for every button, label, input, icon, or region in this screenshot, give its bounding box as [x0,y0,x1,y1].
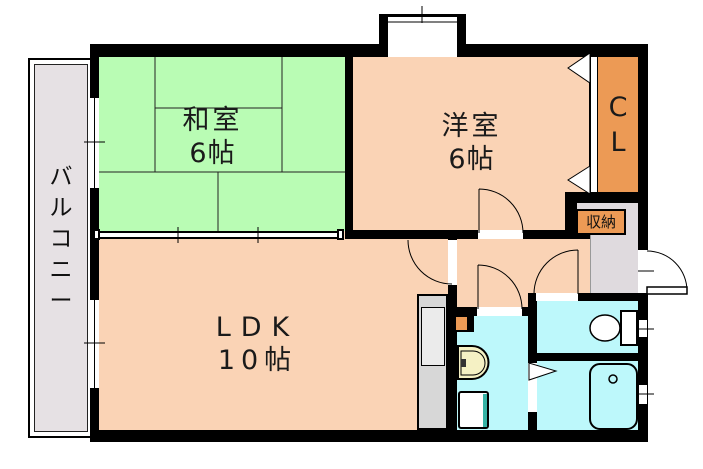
vertical-char: L [598,125,638,160]
floor-plan: バルコニー 収納 [0,0,703,469]
door-swing-icon [479,189,523,233]
toilet-icon [590,311,637,345]
door-swing-icon [534,250,578,294]
room-name: LDK [170,311,345,344]
japanese-room-label: 和室 6帖 [120,104,305,170]
entry-door-leaf [647,287,687,294]
washbasin-icon [458,346,489,379]
bathtub-icon [590,364,637,429]
room-size: 6帖 [120,137,305,170]
folding-door-icon [568,166,590,194]
western-room-label: 洋室 6帖 [379,110,564,176]
room-name: 洋室 [379,110,564,143]
folding-door-icon [529,363,556,380]
folding-door-icon [568,53,590,83]
room-name: 和室 [120,104,305,137]
door-swing-icon [478,265,522,309]
door-swing-icon [408,240,452,284]
room-size: 6帖 [379,143,564,176]
vertical-char: C [598,90,638,125]
closet-label: CL [598,90,638,160]
room-size: 10帖 [170,344,345,377]
ldk-label: LDK 10帖 [170,311,345,377]
symbols-overlay [0,0,703,469]
